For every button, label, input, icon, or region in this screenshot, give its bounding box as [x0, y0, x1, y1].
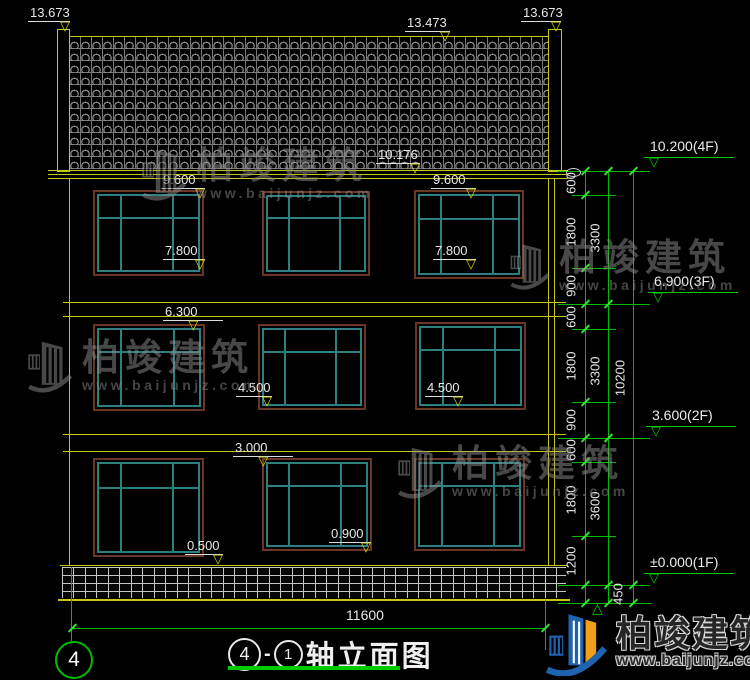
- axis-bubble-4: 4: [55, 641, 93, 679]
- dim-value-plinth: 450: [611, 583, 626, 605]
- window-frame: [262, 328, 362, 406]
- dim-value: 900: [564, 409, 579, 431]
- level-triangle-icon: ▽: [551, 20, 561, 31]
- watermark-name: 柏竣建筑: [82, 339, 259, 377]
- extension-line: [572, 195, 616, 196]
- overall-dim-value: 11600: [330, 607, 400, 623]
- level-triangle-icon: ▽: [466, 187, 476, 198]
- window-3f-middle: [262, 191, 370, 276]
- window-mullion: [120, 194, 122, 272]
- watermark: 柏竣建筑 www.baijunjz.com: [136, 146, 373, 202]
- level-marker: 13.673▽: [521, 5, 561, 22]
- window-mullion: [288, 462, 290, 547]
- floor-band-3f: [63, 302, 566, 303]
- watermark-logo-icon: [22, 338, 76, 394]
- overall-dim-line: [72, 628, 545, 629]
- window-mullion: [440, 194, 442, 275]
- level-triangle-icon: ▽: [649, 156, 659, 168]
- floor-level-marker: 10.200(4F)▽: [644, 138, 734, 158]
- watermark-site: www.baijunjz.com: [452, 483, 629, 499]
- left-gable-parapet: [57, 29, 70, 172]
- window-transom: [418, 218, 520, 220]
- level-marker: 10.176▽: [376, 147, 420, 164]
- level-marker: 13.473▽: [405, 15, 450, 32]
- window-transom: [266, 485, 368, 487]
- dim-value: 1800: [564, 352, 579, 381]
- window-mullion: [339, 195, 341, 272]
- watermark-name: 柏竣建筑: [196, 147, 373, 185]
- level-triangle-icon: ▽: [195, 258, 205, 269]
- floor-band-2f: [63, 434, 566, 435]
- plinth-top-line: [60, 565, 568, 566]
- level-triangle-icon: ▽: [410, 162, 420, 173]
- level-triangle-icon: ▽: [466, 258, 476, 269]
- watermark: 柏竣建筑 www.baijunjz.com: [505, 238, 736, 294]
- window-mullion: [120, 462, 122, 553]
- window-transom: [419, 349, 522, 351]
- floor-level-marker: ±0.000(1F)▽: [644, 554, 734, 574]
- title-axis-end-bubble: 1: [274, 640, 303, 669]
- extension-line: [572, 329, 616, 330]
- level-marker: 13.673▽: [28, 5, 70, 22]
- dim-value: 3300: [588, 357, 603, 386]
- window-mullion: [288, 195, 290, 272]
- dim-line-storeys: [608, 171, 609, 603]
- level-marker: 6.300▽: [163, 304, 223, 321]
- dim-value: 600: [564, 306, 579, 328]
- window-transom: [262, 351, 362, 353]
- level-marker: 9.600▽: [431, 172, 476, 189]
- window-3f-left: [93, 190, 204, 276]
- ground-line: [58, 599, 570, 601]
- window-mullion: [172, 194, 174, 272]
- floor-band-3f: [63, 316, 566, 317]
- dim-line-segments: [585, 171, 586, 603]
- dim-value: 1200: [564, 547, 579, 576]
- title-axis-start: 4: [239, 644, 249, 665]
- watermark: 柏竣建筑 www.baijunjz.com: [22, 338, 259, 394]
- extension-line-1f: [558, 585, 650, 586]
- level-marker: 0.500▽: [185, 538, 223, 555]
- elevation-drawing: 13.673▽ 13.473▽ 13.673▽ 10.176▽ 9.600▽ 9…: [0, 0, 750, 680]
- window-mullion: [494, 326, 496, 406]
- level-triangle-icon: ▽: [649, 572, 659, 584]
- level-triangle-icon: ▽: [651, 425, 661, 437]
- wall-right-edge-inner: [554, 178, 555, 566]
- level-triangle-icon: ▽: [361, 541, 371, 552]
- level-marker: 4.500▽: [425, 380, 463, 397]
- wall-right-edge: [548, 178, 549, 566]
- dim-value: 600: [564, 172, 579, 194]
- window-transom: [97, 217, 200, 219]
- level-triangle-icon: ▽: [440, 30, 450, 41]
- dim-value-total: 10200: [613, 360, 628, 396]
- watermark: 柏竣建筑 www.baijunjz.com: [392, 444, 629, 500]
- right-gable-parapet: [548, 29, 562, 172]
- window-mullion: [492, 194, 494, 275]
- extension-line: [572, 536, 616, 537]
- brand-name: 柏竣建筑: [616, 616, 750, 652]
- level-marker: 0.900▽: [329, 526, 371, 543]
- title-axis-end: 1: [284, 646, 292, 663]
- window-2f-middle: [258, 324, 366, 410]
- watermark-name: 柏竣建筑: [559, 239, 736, 277]
- watermark-site: www.baijunjz.com: [82, 377, 259, 393]
- watermark-logo-icon: [505, 238, 553, 294]
- level-marker: 7.800▽: [433, 243, 476, 260]
- title-separator: -: [264, 643, 271, 666]
- window-mullion: [172, 462, 174, 553]
- brand-site: www.baijunjz.com: [616, 652, 750, 670]
- watermark-site: www.baijunjz.com: [559, 277, 736, 293]
- window-transom: [97, 487, 200, 489]
- axis-number: 4: [68, 648, 80, 672]
- extension-line-3f: [558, 304, 650, 305]
- window-frame: [266, 195, 366, 272]
- floor-level-marker: 3.600(2F)▽: [646, 407, 736, 427]
- brand-logo-icon: [542, 610, 612, 676]
- level-triangle-icon: ▽: [262, 395, 272, 406]
- window-mullion: [335, 328, 337, 406]
- brick-plinth: [62, 567, 566, 598]
- brand-logo: 柏竣建筑 www.baijunjz.com: [542, 610, 750, 676]
- level-triangle-icon: ▽: [188, 319, 198, 330]
- dim-line-total: [633, 171, 634, 603]
- window-frame: [97, 194, 200, 272]
- level-marker: 7.800▽: [163, 243, 205, 260]
- level-triangle-icon: ▽: [60, 20, 70, 31]
- watermark-site: www.baijunjz.com: [196, 185, 373, 201]
- level-triangle-icon: ▽: [258, 455, 268, 466]
- title-underline: [228, 666, 400, 670]
- watermark-name: 柏竣建筑: [452, 445, 629, 483]
- watermark-logo-icon: [392, 444, 446, 500]
- watermark-logo-icon: [136, 146, 190, 202]
- level-marker: 3.000▽: [233, 440, 293, 457]
- level-triangle-icon: ▽: [213, 553, 223, 564]
- window-mullion: [284, 328, 286, 406]
- level-triangle-icon: ▽: [453, 395, 463, 406]
- extension-line: [572, 402, 616, 403]
- window-transom: [266, 217, 366, 219]
